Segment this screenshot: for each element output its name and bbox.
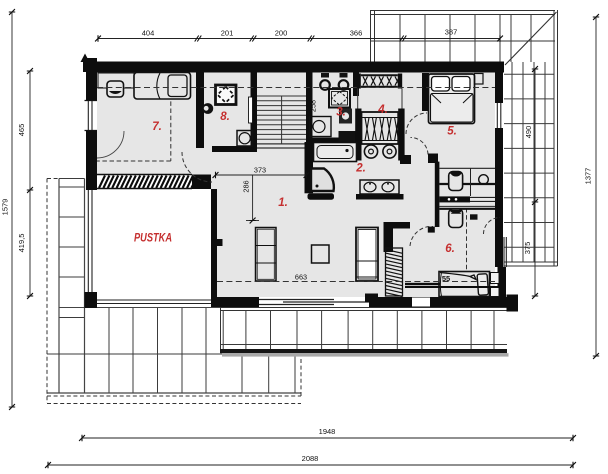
svg-text:366: 366 — [350, 29, 363, 38]
svg-text:490: 490 — [524, 126, 533, 139]
svg-text:258: 258 — [309, 100, 318, 112]
svg-text:200: 200 — [275, 29, 288, 38]
svg-text:404: 404 — [142, 29, 155, 38]
svg-text:1377: 1377 — [584, 168, 593, 185]
svg-text:PUSTKA: PUSTKA — [134, 231, 172, 245]
svg-text:387: 387 — [445, 28, 458, 37]
svg-text:2.: 2. — [355, 163, 366, 175]
svg-text:375: 375 — [523, 242, 532, 255]
svg-text:419,5: 419,5 — [17, 234, 26, 253]
svg-text:7.: 7. — [152, 121, 162, 133]
svg-text:5.: 5. — [447, 126, 457, 138]
svg-text:465: 465 — [17, 124, 26, 137]
svg-text:201: 201 — [221, 29, 234, 38]
svg-text:663: 663 — [295, 273, 307, 282]
svg-text:1579: 1579 — [1, 199, 10, 216]
svg-text:6.: 6. — [445, 243, 455, 255]
svg-text:373: 373 — [254, 166, 266, 175]
svg-text:4.: 4. — [377, 104, 388, 116]
svg-text:286: 286 — [242, 180, 251, 192]
svg-text:8.: 8. — [220, 111, 230, 123]
svg-text:3.: 3. — [336, 107, 346, 119]
svg-text:1948: 1948 — [319, 427, 336, 436]
svg-text:2088: 2088 — [302, 454, 319, 463]
svg-text:1.: 1. — [278, 197, 288, 209]
